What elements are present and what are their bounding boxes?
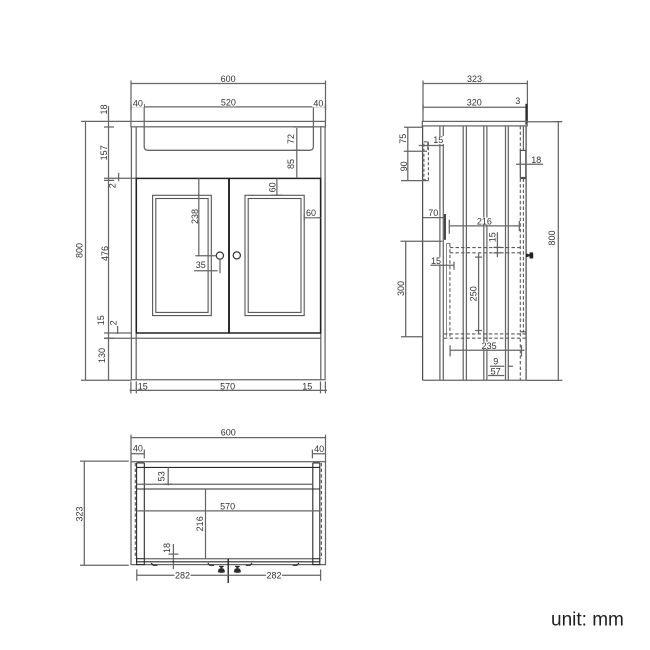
svg-text:323: 323	[74, 506, 84, 521]
svg-text:18: 18	[531, 155, 541, 165]
svg-text:40: 40	[314, 444, 324, 454]
svg-text:60: 60	[306, 208, 316, 218]
svg-text:15: 15	[431, 256, 441, 266]
svg-text:unit: mm: unit: mm	[551, 610, 624, 631]
svg-text:70: 70	[428, 208, 438, 218]
svg-text:15: 15	[138, 382, 148, 392]
svg-text:18: 18	[162, 543, 172, 553]
svg-text:53: 53	[157, 471, 167, 481]
svg-text:15: 15	[488, 232, 498, 242]
svg-text:85: 85	[286, 159, 296, 169]
svg-text:15: 15	[96, 315, 106, 325]
svg-text:216: 216	[195, 516, 205, 531]
svg-text:130: 130	[97, 348, 107, 363]
svg-text:320: 320	[467, 98, 482, 108]
svg-text:238: 238	[190, 209, 200, 224]
svg-text:600: 600	[221, 74, 236, 84]
svg-text:60: 60	[267, 182, 277, 192]
svg-text:75: 75	[398, 134, 408, 144]
svg-text:35: 35	[196, 260, 206, 270]
svg-text:15: 15	[302, 382, 312, 392]
svg-text:9: 9	[493, 357, 498, 367]
svg-text:235: 235	[482, 341, 497, 351]
svg-text:476: 476	[100, 246, 110, 261]
svg-text:250: 250	[469, 286, 479, 301]
svg-text:40: 40	[313, 98, 323, 108]
svg-text:300: 300	[396, 281, 406, 296]
svg-text:2: 2	[108, 183, 118, 188]
svg-text:3: 3	[515, 96, 520, 106]
svg-text:800: 800	[75, 243, 85, 258]
svg-text:800: 800	[547, 230, 557, 245]
svg-text:157: 157	[99, 145, 109, 160]
svg-text:282: 282	[175, 570, 190, 580]
svg-text:520: 520	[221, 97, 236, 107]
svg-text:40: 40	[133, 444, 143, 454]
svg-text:600: 600	[221, 428, 236, 438]
svg-text:57: 57	[491, 366, 501, 376]
svg-text:18: 18	[99, 104, 109, 114]
svg-text:570: 570	[220, 382, 235, 392]
svg-text:90: 90	[399, 161, 409, 171]
svg-text:282: 282	[266, 570, 281, 580]
svg-text:72: 72	[286, 134, 296, 144]
svg-text:570: 570	[220, 501, 235, 511]
svg-text:216: 216	[477, 217, 492, 227]
svg-text:323: 323	[467, 74, 482, 84]
svg-text:40: 40	[133, 98, 143, 108]
svg-text:15: 15	[433, 135, 443, 145]
svg-text:2: 2	[109, 320, 119, 325]
